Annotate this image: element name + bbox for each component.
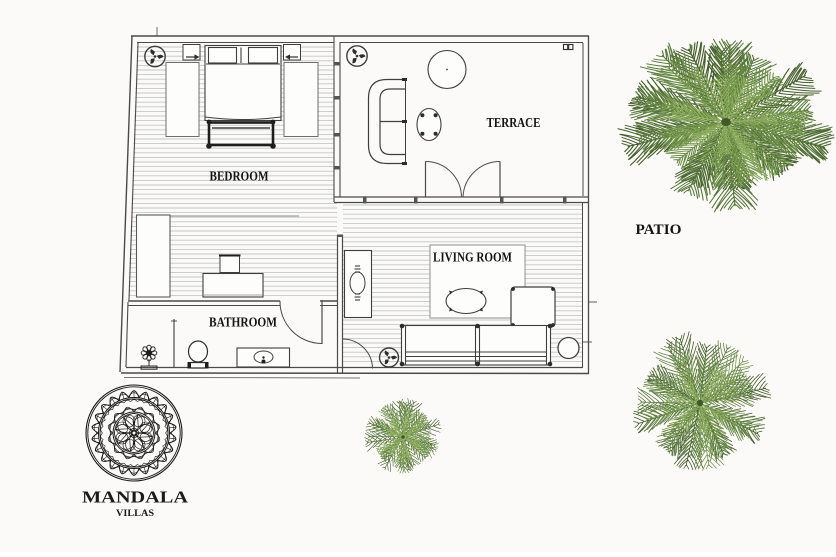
svg-text:BEDROOM: BEDROOM	[210, 170, 269, 185]
svg-text:TERRACE: TERRACE	[487, 116, 541, 131]
svg-text:MANDALA: MANDALA	[82, 488, 188, 507]
svg-text:LIVING ROOM: LIVING ROOM	[433, 251, 512, 266]
svg-text:VILLAS: VILLAS	[116, 508, 154, 518]
svg-text:BATHROOM: BATHROOM	[209, 316, 277, 331]
svg-text:PATIO: PATIO	[636, 222, 682, 238]
